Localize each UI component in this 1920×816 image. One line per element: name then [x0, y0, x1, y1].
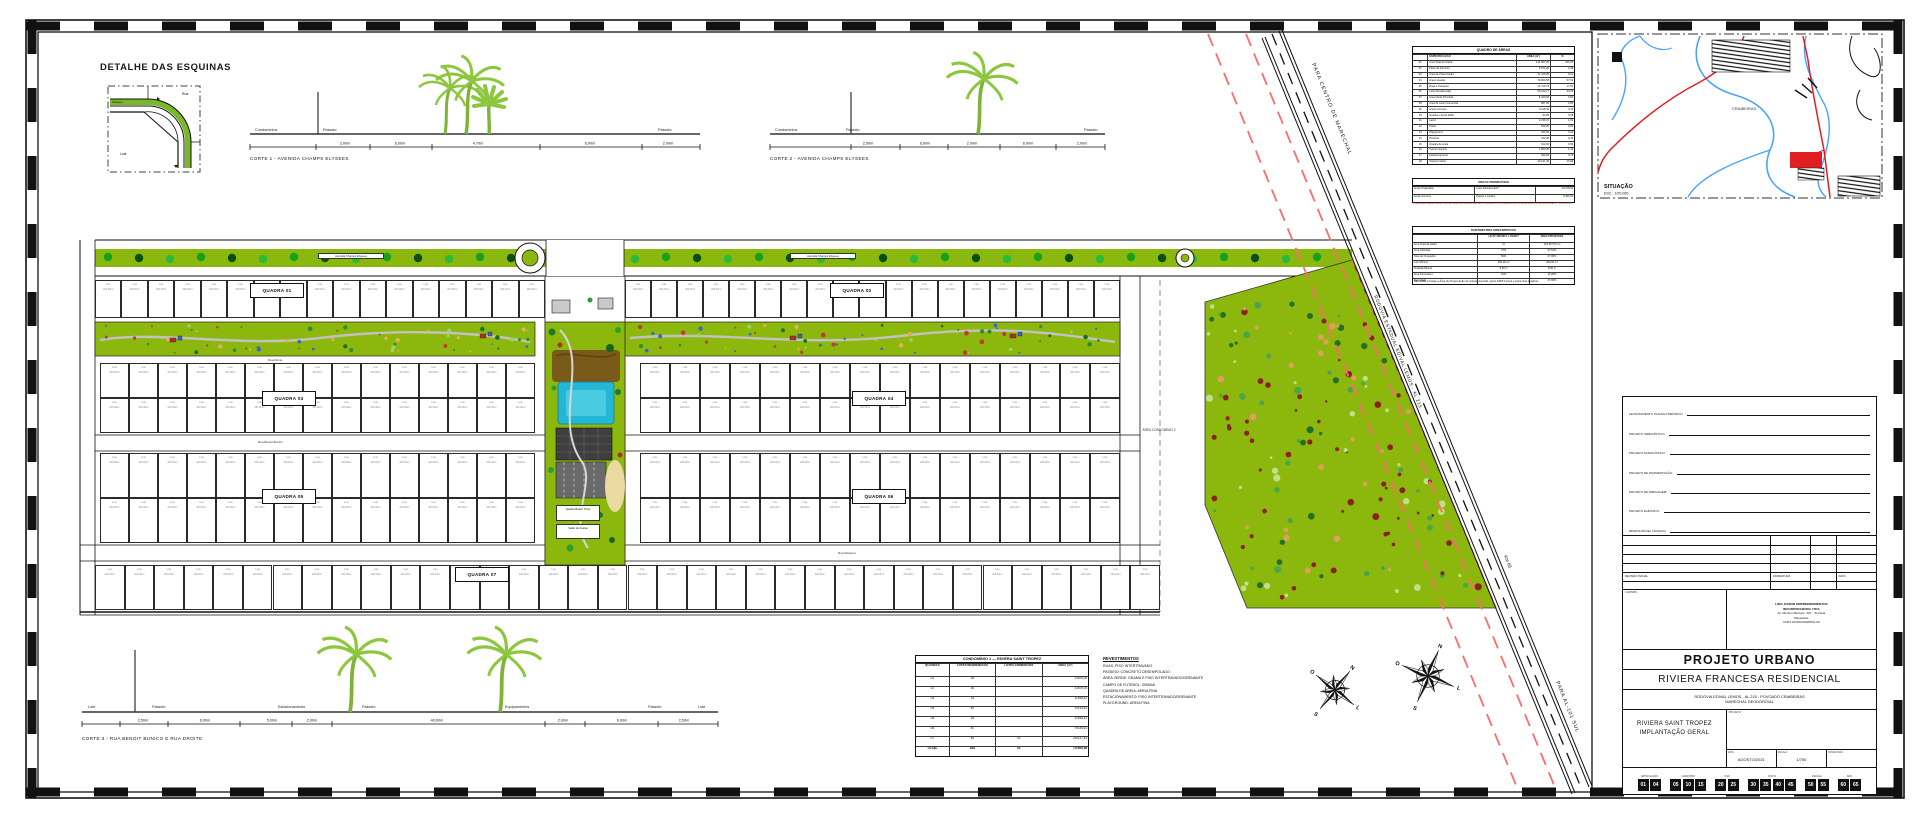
- table-cell: Área Verde Principal: [1427, 96, 1516, 101]
- lot-area: 200,00m²: [175, 288, 199, 291]
- table-cell: 44.278,00: [1535, 187, 1574, 194]
- lot-cell: Lote200,00m²: [477, 363, 506, 398]
- lot-cell: Lote200,00m²: [677, 280, 703, 318]
- lot-number: Lote: [130, 456, 157, 459]
- lot-cell: Lote200,00m²: [390, 453, 419, 498]
- table-cell: LOTES RESIDENCIAIS: [949, 664, 995, 676]
- lot-number: Lote: [791, 501, 819, 504]
- lot-number: Lote: [1001, 456, 1029, 459]
- signature-rule: [1687, 415, 1870, 416]
- table-cell: 0,80: [1550, 102, 1574, 107]
- finishes-notes: REVESTIMENTOS RUAS: PISO INTERTRAVADOPAS…: [1103, 656, 1258, 706]
- project-address: RODOVIA EDIVAL LEMOS - AL 215 - POVOADO …: [1623, 689, 1876, 709]
- lot-area: 200,00m²: [449, 461, 476, 464]
- sheet-box-row: 051015: [1670, 779, 1706, 791]
- drawing-title-line1: RIVIERA SAINT TROPEZ: [1623, 720, 1726, 729]
- lot-number: Lote: [731, 366, 759, 369]
- lot-number: Lote: [971, 501, 999, 504]
- table-cell: 14: [1413, 136, 1427, 141]
- note-line: PLAYGROUND: AREIA FINA: [1103, 700, 1258, 706]
- lot-cell: Lote200,00m²: [100, 498, 129, 543]
- lot-area: 200,00m²: [701, 406, 729, 409]
- date-scale-fields: DATAAGOSTO/2021ESCALA1/750ASSINATURA: [1727, 749, 1876, 767]
- lot-cell: Lote200,00m²: [125, 565, 155, 610]
- lot-cell: Lote200,00m²: [1030, 363, 1060, 398]
- lot-cell: Lote200,00m²: [775, 565, 805, 610]
- lot-number: Lote: [334, 283, 358, 286]
- table-row: 18Sistema Viário13.191,4910,69: [1413, 159, 1574, 165]
- lot-area: 200,00m²: [362, 406, 389, 409]
- lot-area: 200,00m²: [362, 461, 389, 464]
- lot-number: Lote: [175, 283, 199, 286]
- lot-cell: Lote200,00m²: [983, 565, 1013, 610]
- revision-cell: [1770, 546, 1810, 554]
- table-cell: 30: [949, 677, 995, 686]
- lot-cell: Lote200,00m²: [148, 280, 174, 318]
- lot-area: 200,00m²: [939, 288, 963, 291]
- lot-area: 200,00m²: [414, 288, 438, 291]
- lot-cell: Lote200,00m²: [1060, 398, 1090, 433]
- table-row: 08Área de Lazer Comercial987,000,80: [1413, 101, 1574, 107]
- table-cell: ESPECIFICAÇÃO: [1427, 55, 1516, 60]
- lot-area: 200,00m²: [510, 573, 538, 576]
- lot-area: 200,00m²: [971, 371, 999, 374]
- signature-rows: LEVANTAMENTO PLANIALTIMÉTRICO:PROJETO UR…: [1623, 397, 1876, 533]
- lot-area: 200,00m²: [217, 371, 244, 374]
- lot-area: 200,00m²: [954, 573, 982, 576]
- lot-area: 200,00m²: [101, 461, 128, 464]
- lot-cell: Lote200,00m²: [273, 565, 303, 610]
- lot-number: Lote: [761, 366, 789, 369]
- lot-number: Lote: [362, 456, 389, 459]
- lot-area: 200,00m²: [478, 506, 505, 509]
- lot-area: 200,00m²: [658, 573, 686, 576]
- table-cell: 8.420,00: [1516, 96, 1550, 101]
- lot-area: 200,00m²: [362, 371, 389, 374]
- lot-area: 200,00m²: [688, 573, 716, 576]
- lot-cell: Lote200,00m²: [940, 453, 970, 498]
- lot-number: Lote: [421, 568, 449, 571]
- lot-area: 200,00m²: [791, 461, 819, 464]
- lot-cell: Lote200,00m²: [894, 565, 924, 610]
- lot-area: 200,00m²: [449, 406, 476, 409]
- drawing-sheet: CRAIBEIRAS SITUAÇÃO ESC.: 1/20.000: [0, 0, 1920, 816]
- revision-cell: [1836, 536, 1876, 545]
- lot-area: 200,00m²: [540, 573, 568, 576]
- lot-number: Lote: [1001, 501, 1029, 504]
- lot-cell: Lote200,00m²: [912, 280, 938, 318]
- lot-area: 200,00m²: [851, 371, 879, 374]
- lot-number: Lote: [671, 456, 699, 459]
- table-cell: 40,63: [1550, 90, 1574, 95]
- lot-cell: Lote200,00m²: [670, 363, 700, 398]
- lot-cell: Lote200,00m²: [448, 398, 477, 433]
- revision-row: REVISÃO INICIALASSINATURADATA: [1623, 572, 1876, 581]
- lot-area: 200,00m²: [246, 506, 273, 509]
- lot-number: Lote: [954, 568, 982, 571]
- lot-cell: Lote200,00m²: [420, 565, 450, 610]
- table-cell: [995, 687, 1041, 696]
- lot-cell: Lote200,00m²: [100, 363, 129, 398]
- lot-area: 200,00m²: [304, 461, 331, 464]
- lot-cell: Lote200,00m²: [158, 498, 187, 543]
- lot-cell: Lote200,00m²: [448, 363, 477, 398]
- lot-cell: Lote200,00m²: [216, 398, 245, 433]
- lot-number: Lote: [246, 366, 273, 369]
- lot-cell: Lote200,00m²: [700, 498, 730, 543]
- lot-cell: Lote200,00m²: [245, 498, 274, 543]
- lot-area: 200,00m²: [924, 573, 952, 576]
- lot-number: Lote: [244, 568, 272, 571]
- lot-number: Lote: [155, 568, 183, 571]
- lot-number: Lote: [688, 568, 716, 571]
- lot-number: Lote: [217, 401, 244, 404]
- lot-cell: Lote200,00m²: [820, 363, 850, 398]
- table-cell: Quadra de Areia: [1427, 142, 1516, 147]
- table-cell: 09: [1413, 107, 1427, 112]
- lot-number: Lote: [1095, 283, 1119, 286]
- lot-cell: Lote200,00m²: [970, 363, 1000, 398]
- lot-number: Lote: [333, 366, 360, 369]
- lot-cell: Lote200,00m²: [640, 398, 670, 433]
- table-cell: Lotes Residenciais: [1427, 90, 1516, 95]
- sheet-number: 45: [1785, 779, 1796, 791]
- lot-number: Lote: [641, 401, 669, 404]
- table-cell: 04: [916, 707, 949, 716]
- table-cell: TOTAL: [916, 747, 949, 756]
- lot-cell: Lote200,00m²: [361, 453, 390, 498]
- lot-number: Lote: [126, 568, 154, 571]
- table-cell: 0,66: [1550, 125, 1574, 130]
- party-hall-label: Salão de Festas: [556, 524, 600, 539]
- lot-area: 200,00m²: [392, 573, 420, 576]
- lot-cell: Lote200,00m²: [1030, 398, 1060, 433]
- table-cell: 47,00%: [1529, 255, 1574, 260]
- sheet-box-row: 2025: [1715, 779, 1739, 791]
- table-cell: 05: [1413, 84, 1427, 89]
- lot-cell: Lote200,00m²: [940, 498, 970, 543]
- lot-cell: Lote200,00m²: [391, 565, 421, 610]
- lot-area: 200,00m²: [188, 371, 215, 374]
- table-cell: Playground: [1427, 131, 1516, 136]
- lot-number: Lote: [1043, 568, 1071, 571]
- lot-cell: Lote200,00m²: [1030, 453, 1060, 498]
- lot-cell: Lote200,00m²: [519, 280, 545, 318]
- lot-number: Lote: [1031, 401, 1059, 404]
- sheet-number: 65: [1850, 779, 1861, 791]
- table-cell: 02: [916, 687, 949, 696]
- lot-area: 200,00m²: [246, 461, 273, 464]
- lot-area: 200,00m²: [1001, 406, 1029, 409]
- lot-number: Lote: [333, 401, 360, 404]
- sheet-box-group-label: ANO: [1838, 775, 1862, 778]
- sheet-box-group: ARTICULAÇÃO0104: [1638, 775, 1662, 791]
- table-cell: 06: [916, 727, 949, 736]
- lot-area: 200,00m²: [747, 573, 775, 576]
- table-row: 09Áreas Comuns5.118,424,15: [1413, 106, 1574, 112]
- table-cell: 1,81: [1550, 119, 1574, 124]
- lot-number: Lote: [478, 456, 505, 459]
- permeable-note: * A área permeável específica de cada lo…: [1412, 202, 1575, 205]
- lot-cell: Lote200,00m²: [790, 398, 820, 433]
- lot-number: Lote: [971, 366, 999, 369]
- table-cell: 04: [1413, 78, 1427, 83]
- revision-cell: ASSINATURA: [1770, 573, 1810, 581]
- table-cell: 6.468,42: [1042, 697, 1088, 706]
- lot-number: Lote: [101, 501, 128, 504]
- table-cell: ÁREA (m²): [1042, 664, 1088, 676]
- lot-area: 200,00m²: [1091, 406, 1119, 409]
- lot-area: 200,00m²: [1061, 461, 1089, 464]
- lot-cell: Lote200,00m²: [886, 280, 912, 318]
- lot-number: Lote: [362, 568, 390, 571]
- lot-area: 200,00m²: [984, 573, 1012, 576]
- lot-cell: Lote200,00m²: [940, 363, 970, 398]
- lot-number: Lote: [217, 456, 244, 459]
- revision-cell: [1810, 546, 1835, 554]
- quadra-07-label: QUADRA 07: [455, 567, 509, 582]
- table-title: QUADRO DE ÁREAS: [1413, 47, 1574, 54]
- lot-cell: Lote200,00m²: [820, 398, 850, 433]
- lot-number: Lote: [941, 456, 969, 459]
- quadra-02-label: QUADRA 02: [830, 283, 884, 298]
- lot-number: Lote: [941, 401, 969, 404]
- lot-area: 200,00m²: [304, 406, 331, 409]
- lot-area: 200,00m²: [599, 573, 627, 576]
- sheet-box-group: USO2025: [1715, 775, 1739, 791]
- lot-cell: Lote200,00m²: [448, 498, 477, 543]
- table-cell: 26.637,81: [1042, 737, 1088, 746]
- lot-cell: Lote200,00m²: [332, 498, 361, 543]
- table-cell: 0,34: [1550, 131, 1574, 136]
- quadra-03-label: QUADRA 03: [262, 391, 316, 406]
- lot-cell: Lote200,00m²: [760, 453, 790, 498]
- lot-area: 200,00m²: [1061, 506, 1089, 509]
- lot-area: 200,00m²: [274, 573, 302, 576]
- lot-area: 200,00m²: [836, 573, 864, 576]
- lot-area: 200,00m²: [244, 573, 272, 576]
- table-cell: 50.122,77: [1516, 90, 1550, 95]
- project-type: PROJETO URBANO: [1623, 649, 1876, 669]
- lot-cell: Lote200,00m²: [448, 453, 477, 498]
- lot-number: Lote: [747, 568, 775, 571]
- table-cell: 6.468,42: [1042, 717, 1088, 726]
- lot-area: 200,00m²: [913, 288, 937, 291]
- lot-number: Lote: [467, 283, 491, 286]
- table-row: TOTAL2530170.960,58: [916, 746, 1088, 756]
- lot-number: Lote: [493, 283, 517, 286]
- lot-number: Lote: [149, 283, 173, 286]
- lot-area: 200,00m²: [756, 288, 780, 291]
- lot-number: Lote: [911, 501, 939, 504]
- lot-cell: Lote200,00m²: [390, 498, 419, 543]
- table-cell: 2.236,70: [1516, 119, 1550, 124]
- field-label: ESCALA: [1778, 751, 1787, 754]
- sheet-number: 01: [1638, 779, 1649, 791]
- signature-label: PROJETO ELÉTRICO:: [1629, 509, 1660, 513]
- lot-number: Lote: [202, 283, 226, 286]
- lot-area: 200,00m²: [275, 371, 302, 374]
- corner-detail-title: DETALHE DAS ESQUINAS: [100, 62, 231, 73]
- lot-number: Lote: [101, 456, 128, 459]
- revision-row: [1623, 563, 1876, 572]
- table-cell: 0,76: [1550, 154, 1574, 159]
- lot-number: Lote: [1072, 568, 1100, 571]
- lot-cell: Lote200,00m²: [729, 280, 755, 318]
- lot-number: Lote: [101, 401, 128, 404]
- lot-area: 200,00m²: [641, 461, 669, 464]
- revision-cell: [1810, 555, 1835, 563]
- lot-area: 200,00m²: [1031, 406, 1059, 409]
- lot-number: Lote: [391, 401, 418, 404]
- field-value: 1/750: [1777, 757, 1826, 762]
- lot-area: 200,00m²: [275, 406, 302, 409]
- lot-cell: Lote200,00m²: [243, 565, 273, 610]
- sheet-number-boxes: ARTICULAÇÃO0104CADASTRO051015USO2025FOLH…: [1623, 767, 1876, 794]
- table-cell: Lotes Residenciais*: [1474, 187, 1535, 194]
- lot-area: 200,00m²: [122, 288, 146, 291]
- table-cell: 01: [995, 737, 1041, 746]
- lot-area: 200,00m²: [1031, 506, 1059, 509]
- lot-cell: Lote200,00m²: [95, 280, 121, 318]
- lot-cell: Lote200,00m²: [970, 398, 1000, 433]
- lot-area: 200,00m²: [941, 506, 969, 509]
- lot-cell: Lote200,00m²: [730, 363, 760, 398]
- lot-cell: Lote200,00m²: [477, 498, 506, 543]
- table-cell: 100,00: [1550, 61, 1574, 66]
- table-row: Testada Mínima8,00 m8,00 m: [1413, 266, 1574, 272]
- lot-area: 200,00m²: [333, 573, 361, 576]
- lot-cell: Lote200,00m²: [332, 565, 362, 610]
- table-cell: 0,50: [1550, 142, 1574, 147]
- table-cell: Praças e Jardins: [1474, 195, 1535, 202]
- lot-number: Lote: [333, 568, 361, 571]
- lot-number: Lote: [392, 568, 420, 571]
- lot-number: Lote: [420, 366, 447, 369]
- sheet-box-group-label: USO: [1715, 775, 1739, 778]
- lot-number: Lote: [188, 456, 215, 459]
- lot-cell: Lote200,00m²: [129, 398, 158, 433]
- table-cell: 123.367,00 m²: [1529, 243, 1574, 248]
- lot-number: Lote: [1091, 366, 1119, 369]
- lot-area: 200,00m²: [1043, 288, 1067, 291]
- lot-number: Lote: [701, 501, 729, 504]
- lot-area: 200,00m²: [731, 506, 759, 509]
- table-row: 04409.634,61: [916, 706, 1088, 716]
- table-cell: 0,25: [1550, 136, 1574, 141]
- lot-area: 200,00m²: [671, 371, 699, 374]
- sheet-number: 30: [1748, 779, 1759, 791]
- avenue-name-label: Avenida Champs Elysees: [318, 253, 384, 259]
- lot-area: 200,00m²: [130, 506, 157, 509]
- lot-number: Lote: [701, 366, 729, 369]
- table-cell: Campo Society: [1427, 148, 1516, 153]
- lot-area: 200,00m²: [217, 506, 244, 509]
- table-row: Taxa de Ocupação60%47,00%: [1413, 254, 1574, 260]
- revision-cell: DATA: [1836, 573, 1876, 581]
- lot-number: Lote: [507, 501, 534, 504]
- lot-number: Lote: [96, 568, 124, 571]
- lot-area: 200,00m²: [881, 371, 909, 374]
- sheet-box-group-label: FOLHA: [1748, 775, 1797, 778]
- lot-number: Lote: [1043, 283, 1067, 286]
- table-cell: 07: [1413, 96, 1427, 101]
- lot-area: 200,00m²: [701, 461, 729, 464]
- lot-area: 200,00m²: [420, 461, 447, 464]
- lot-area: 200,00m²: [101, 371, 128, 374]
- lot-area: 200,00m²: [791, 406, 819, 409]
- lot-area: 200,00m²: [1031, 371, 1059, 374]
- table-title: CONDOMÍNIO 1 — RIVIERA SAINT TROPEZ: [916, 656, 1088, 663]
- lot-cell: Lote200,00m²: [805, 565, 835, 610]
- lot-number: Lote: [304, 366, 331, 369]
- field-label: ASSINATURA: [1828, 751, 1843, 754]
- quadra-04-label: QUADRA 04: [852, 391, 906, 406]
- table-cell: LEI Nº 295/2017 e 10/2017: [1477, 235, 1529, 242]
- lot-number: Lote: [122, 283, 146, 286]
- lot-area: 200,00m²: [333, 461, 360, 464]
- lot-number: Lote: [913, 283, 937, 286]
- lot-number: Lote: [1091, 456, 1119, 459]
- lot-cell: Lote200,00m²: [970, 498, 1000, 543]
- field-cell: ASSINATURA: [1826, 750, 1876, 767]
- lot-area: 200,00m²: [776, 573, 804, 576]
- lot-cell: Lote200,00m²: [700, 398, 730, 433]
- lot-area: 200,00m²: [626, 288, 650, 291]
- lot-area: 200,00m²: [1091, 461, 1119, 464]
- table-cell: Área Permeável: [1413, 273, 1477, 278]
- lot-area: 200,00m²: [851, 506, 879, 509]
- lot-number: Lote: [387, 283, 411, 286]
- lot-number: Lote: [308, 283, 332, 286]
- table-cell: 0,08: [1550, 113, 1574, 118]
- lot-number: Lote: [599, 568, 627, 571]
- lot-area: 200,00m²: [791, 371, 819, 374]
- lot-cell: Lote200,00m²: [1060, 453, 1090, 498]
- table-row: Áreas ComunsPraças e Jardins8.420,00: [1413, 194, 1574, 202]
- lot-number: Lote: [275, 456, 302, 459]
- sheet-number: 60: [1838, 779, 1849, 791]
- lot-number: Lote: [420, 456, 447, 459]
- lot-area: 200,00m²: [941, 406, 969, 409]
- lot-number: Lote: [1102, 568, 1130, 571]
- table-cell: Guarita e Apoio ADM: [1427, 113, 1516, 118]
- sheet-box-row: 0104: [1638, 779, 1662, 791]
- revision-cell: [1623, 536, 1770, 545]
- lot-number: Lote: [420, 401, 447, 404]
- table-cell: 253: [949, 747, 995, 756]
- lot-area: 200,00m²: [130, 461, 157, 464]
- lot-cell: Lote200,00m²: [938, 280, 964, 318]
- table-row: LEI Nº 295/2017 e 10/2017ÁREA PROJETADA: [1413, 234, 1574, 242]
- lot-number: Lote: [362, 401, 389, 404]
- lot-number: Lote: [865, 568, 893, 571]
- lot-number: Lote: [1069, 283, 1093, 286]
- revision-cell: [1810, 564, 1835, 572]
- lot-cell: Lote200,00m²: [1030, 498, 1060, 543]
- lot-cell: Lote200,00m²: [990, 280, 1016, 318]
- table-cell: 9,01: [1550, 73, 1574, 78]
- field-label: DATA: [1728, 751, 1734, 754]
- lot-cell: Lote200,00m²: [361, 498, 390, 543]
- lot-area: 200,00m²: [149, 288, 173, 291]
- lot-area: 200,00m²: [155, 573, 183, 576]
- drawing-title: RIVIERA SAINT TROPEZ IMPLANTAÇÃO GERAL: [1623, 710, 1727, 767]
- lot-area: 200,00m²: [782, 288, 806, 291]
- sheet-box-row: 6065: [1838, 779, 1862, 791]
- signature-rule: [1670, 532, 1870, 533]
- lot-area: 200,00m²: [96, 573, 124, 576]
